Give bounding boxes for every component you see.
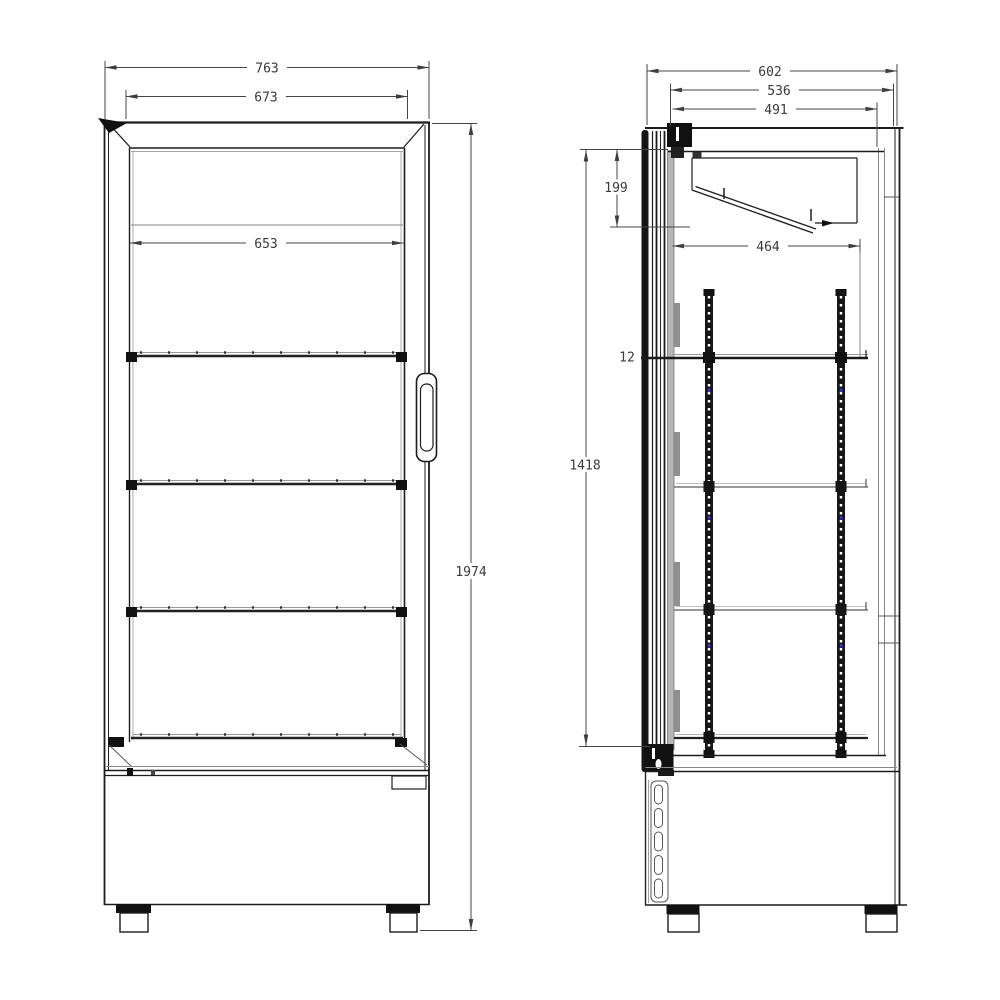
rail-foot xyxy=(704,750,715,758)
dim-label-front-overall-height: 1974 xyxy=(455,565,486,580)
shelf-bracket-left xyxy=(126,607,137,617)
shelf-bracket-right xyxy=(396,352,407,362)
hinge-screw xyxy=(693,152,702,158)
dim-label-shelf-depth: 464 xyxy=(756,240,780,255)
technical-drawing: 763 673 653 1974 602 536 491 199 464 141… xyxy=(0,0,1000,1000)
dim-label-front-door-width: 673 xyxy=(254,91,277,106)
hinge-wedge xyxy=(98,118,127,133)
shelf-rail-bracket xyxy=(836,732,847,743)
dim-label-shelf-thickness: 12 xyxy=(619,351,635,366)
shelf-rail-bracket xyxy=(704,481,715,492)
front-shelf-3 xyxy=(126,607,407,617)
foot-cap xyxy=(865,905,898,914)
dim-label-front-shelf-width: 653 xyxy=(254,237,277,252)
shelf-rail-bracket xyxy=(835,352,847,363)
sill-bevel-right xyxy=(400,744,427,765)
dimension-labels: 763 673 653 1974 602 536 491 199 464 141… xyxy=(246,60,799,580)
vent-slot xyxy=(655,879,663,898)
air-deflector-line xyxy=(696,187,817,230)
shelf-rail-bracket xyxy=(836,604,847,615)
hinge-slit xyxy=(652,748,655,759)
foot-cap xyxy=(116,904,151,913)
door-liner-band xyxy=(668,150,675,750)
rail-blue-mark xyxy=(708,644,711,648)
foot-body xyxy=(866,914,897,932)
foot-cap xyxy=(667,905,700,914)
shelf-bracket-left xyxy=(108,737,124,747)
rail-blue-mark xyxy=(840,644,843,648)
shelf-rails xyxy=(704,289,847,758)
evaporator-compartment xyxy=(692,158,857,233)
deflector-end-mark xyxy=(822,220,834,227)
gasket-tab xyxy=(674,562,680,606)
corner-bevel-right xyxy=(404,124,424,147)
vent-slot xyxy=(655,856,663,875)
rail-blue-mark xyxy=(840,389,843,393)
rating-plate xyxy=(392,776,426,789)
side-feet xyxy=(667,905,898,932)
hinge-lower-block xyxy=(671,147,684,158)
sill-bevel-left xyxy=(109,745,131,766)
front-dimensions xyxy=(105,61,477,931)
shelf-rail-bracket xyxy=(704,732,715,743)
foot-body xyxy=(120,913,148,932)
foot-cap xyxy=(386,904,420,913)
hinge-slit xyxy=(676,127,679,141)
shelf-bracket-left xyxy=(126,480,137,490)
shelf-rail-bracket xyxy=(836,481,847,492)
vent-slot xyxy=(655,809,663,828)
gasket-tab xyxy=(674,303,680,347)
shelf-bracket-right xyxy=(396,480,407,490)
rail-blue-mark xyxy=(840,516,843,520)
foot-body xyxy=(390,913,417,932)
foot-body xyxy=(668,914,699,932)
front-feet xyxy=(116,904,420,932)
sill-clip-small xyxy=(151,770,155,775)
shelf-bracket-right xyxy=(396,607,407,617)
hinge-block xyxy=(667,123,692,147)
air-deflector-line xyxy=(692,190,813,233)
side-shelf-bottom xyxy=(674,732,868,743)
vent-slot xyxy=(655,785,663,804)
shelf-bracket-left xyxy=(126,352,137,362)
dim-label-side-overall-depth: 602 xyxy=(758,65,781,80)
sill-clip xyxy=(127,768,133,776)
shelf-bracket-right xyxy=(395,738,407,747)
side-dimensions xyxy=(579,64,897,747)
front-shelf-bottom xyxy=(108,735,407,748)
dim-label-side-door-depth: 491 xyxy=(764,103,787,118)
door-slab xyxy=(642,130,649,772)
rail-blue-mark xyxy=(708,389,711,393)
shelf-rail-bracket xyxy=(704,604,715,615)
front-shelf-1 xyxy=(126,352,407,362)
gasket-tab xyxy=(674,690,680,732)
door-handle xyxy=(417,374,437,462)
gasket-tab xyxy=(674,432,680,476)
rail-foot xyxy=(836,750,847,758)
shelf-rail-bracket xyxy=(703,352,715,363)
rail-blue-mark xyxy=(708,516,711,520)
dim-label-front-overall-width: 763 xyxy=(255,62,278,77)
drawing-canvas: 763 673 653 1974 602 536 491 199 464 141… xyxy=(0,0,1000,1000)
dim-label-side-body-depth: 536 xyxy=(767,84,790,99)
dim-label-interior-height: 1418 xyxy=(569,459,600,474)
dim-label-top-compartment-height: 199 xyxy=(604,181,627,196)
front-shelf-2 xyxy=(126,480,407,490)
vent-slot xyxy=(655,832,663,851)
